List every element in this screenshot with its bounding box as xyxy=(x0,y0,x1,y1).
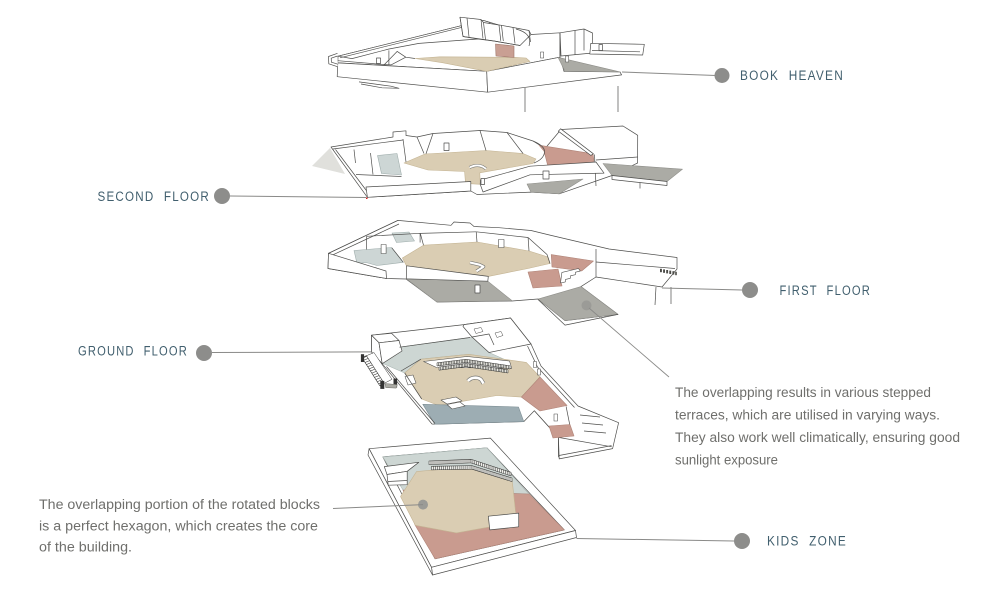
svg-text:of the building.: of the building. xyxy=(39,540,132,556)
svg-text:sunlight exposure: sunlight exposure xyxy=(675,453,778,469)
svg-text:SECOND FLOOR: SECOND FLOOR xyxy=(98,189,211,205)
svg-text:terraces, which are utilised i: terraces, which are utilised in varying … xyxy=(675,408,940,424)
svg-text:The overlapping portion of the: The overlapping portion of the rotated b… xyxy=(39,497,320,513)
svg-text:BOOK HEAVEN: BOOK HEAVEN xyxy=(740,68,844,84)
svg-text:They also work well climatical: They also work well climatically, ensuri… xyxy=(675,430,960,446)
svg-text:FIRST FLOOR: FIRST FLOOR xyxy=(780,283,872,299)
svg-text:GROUND FLOOR: GROUND FLOOR xyxy=(78,344,188,360)
svg-text:KIDS ZONE: KIDS ZONE xyxy=(767,534,847,550)
svg-text:is a perfect hexagon, which cr: is a perfect hexagon, which creates the … xyxy=(39,518,318,534)
svg-text:The overlapping results in var: The overlapping results in various stepp… xyxy=(675,385,931,401)
